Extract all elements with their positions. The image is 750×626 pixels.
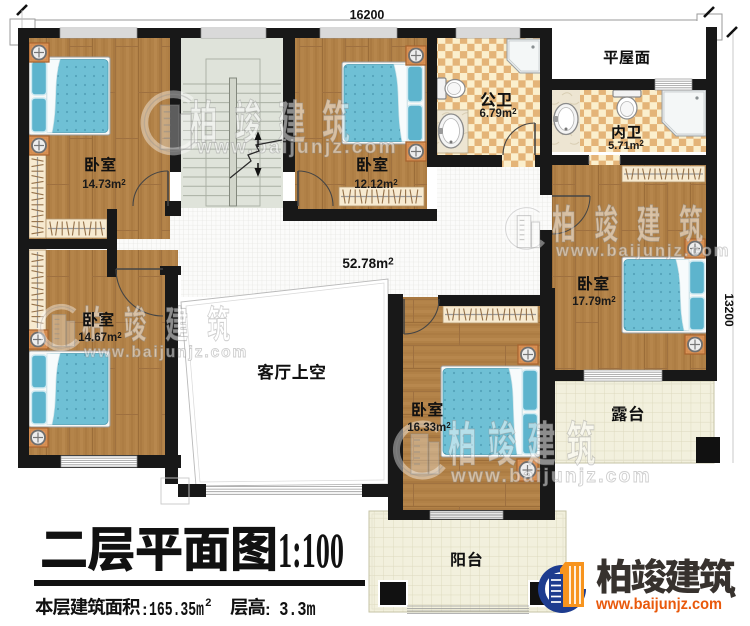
svg-text:14.67m2: 14.67m2 — [78, 331, 122, 344]
svg-text:www.baijunjz.com: www.baijunjz.com — [555, 242, 730, 260]
svg-text:www.baijunjz.com: www.baijunjz.com — [450, 466, 652, 487]
svg-text:5.71m2: 5.71m2 — [608, 139, 644, 152]
svg-text:www.baijunjz.com: www.baijunjz.com — [83, 344, 248, 361]
svg-text:165.35m: 165.35m — [149, 599, 204, 621]
svg-text:16200: 16200 — [350, 8, 385, 22]
svg-text:www.baijunjz.com: www.baijunjz.com — [196, 137, 398, 158]
svg-text:16.33m2: 16.33m2 — [407, 421, 451, 434]
svg-text:www.baijunjz.com: www.baijunjz.com — [595, 596, 722, 613]
svg-text:2: 2 — [205, 598, 212, 610]
svg-text:12.12m2: 12.12m2 — [354, 178, 398, 191]
svg-text::: : — [142, 600, 148, 619]
svg-text:1:100: 1:100 — [278, 522, 344, 578]
svg-text:3.3m: 3.3m — [279, 601, 315, 622]
svg-text:52.78m2: 52.78m2 — [342, 256, 394, 271]
svg-text:13200: 13200 — [722, 293, 736, 327]
svg-text:17.79m2: 17.79m2 — [572, 295, 616, 308]
svg-text::: : — [265, 600, 271, 619]
svg-text:14.73m2: 14.73m2 — [82, 178, 126, 191]
svg-text:6.79m2: 6.79m2 — [479, 107, 517, 120]
